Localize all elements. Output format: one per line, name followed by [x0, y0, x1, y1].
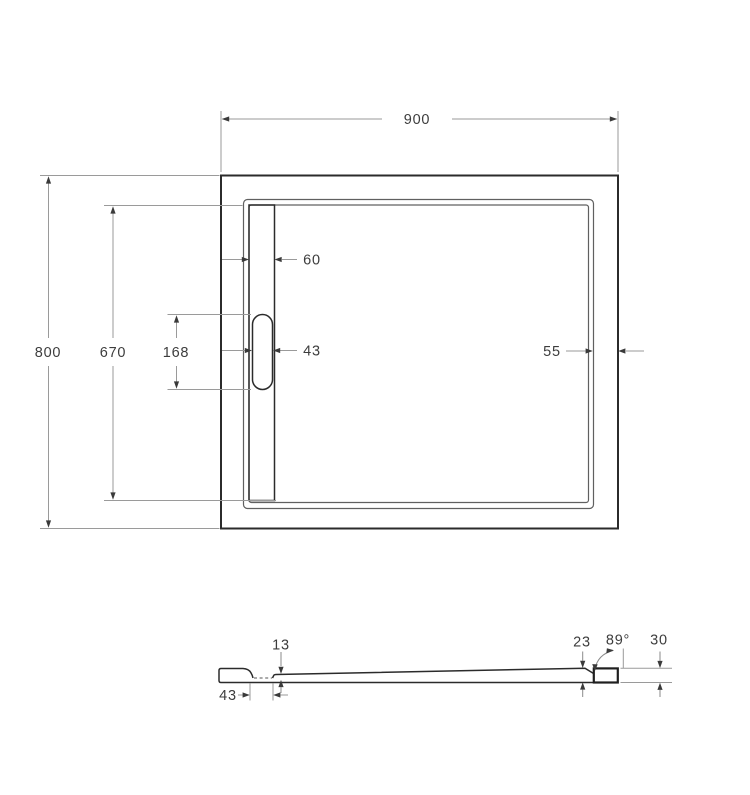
arrow-left-icon [222, 116, 230, 121]
arrow-left-icon [273, 692, 280, 697]
arrow-up-icon [46, 176, 51, 183]
arrow-down-icon [110, 492, 115, 499]
dim-overall-depth: 800 [35, 176, 220, 529]
dim-label-55: 55 [543, 344, 561, 360]
arrow-up-icon [580, 682, 585, 689]
section-profile-left [219, 669, 618, 683]
basin-inner-line [249, 205, 589, 503]
section-right-rim-block [594, 668, 618, 682]
dim-label-43-section: 43 [219, 688, 237, 704]
arrow-right-icon [586, 348, 593, 353]
basin-outer-line [244, 200, 594, 509]
arrow-down-icon [580, 661, 585, 668]
arrow-down-icon [657, 661, 662, 668]
dim-floor-step-depth: 13 [272, 638, 290, 694]
dim-label-900: 900 [404, 112, 431, 128]
arrow-down-icon [278, 667, 283, 674]
arrow-up-icon [278, 680, 283, 687]
arrow-left-icon [618, 348, 625, 353]
section-floor-line [273, 668, 594, 678]
arrow-left-icon [275, 257, 282, 262]
arrow-right-icon [610, 116, 618, 121]
shower-tray-drawing: 900 800 670 168 43 [0, 0, 750, 795]
dim-label-43-top: 43 [303, 344, 321, 360]
technical-drawing-page: 900 800 670 168 43 [0, 0, 750, 795]
dim-overall-width: 900 [221, 111, 618, 172]
drain-cover [253, 315, 273, 390]
arrow-down-icon [46, 520, 51, 527]
angle-arc-leader [595, 651, 613, 670]
arrow-down-icon [174, 381, 179, 388]
dim-label-13: 13 [272, 638, 290, 654]
dim-drain-cover-length: 168 [163, 315, 251, 390]
arrow-right-icon [243, 692, 250, 697]
dim-label-168: 168 [163, 345, 190, 361]
dim-label-30: 30 [650, 633, 668, 649]
section-view [219, 668, 618, 682]
dim-label-89deg: 89° [606, 633, 630, 649]
arrow-up-icon [110, 206, 115, 213]
arrow-up-icon [174, 315, 179, 322]
dim-label-60: 60 [303, 253, 321, 269]
arrow-right-icon [242, 257, 249, 262]
dim-label-800: 800 [35, 345, 62, 361]
dim-drain-slot-width: 43 [219, 684, 288, 705]
dim-channel-width: 60 [222, 253, 321, 269]
dim-wall-angle: 89° [592, 633, 630, 672]
arrow-up-icon [657, 683, 662, 690]
dim-label-670: 670 [100, 345, 127, 361]
dim-end-thickness: 23 [573, 635, 591, 698]
dim-label-23: 23 [573, 635, 591, 651]
